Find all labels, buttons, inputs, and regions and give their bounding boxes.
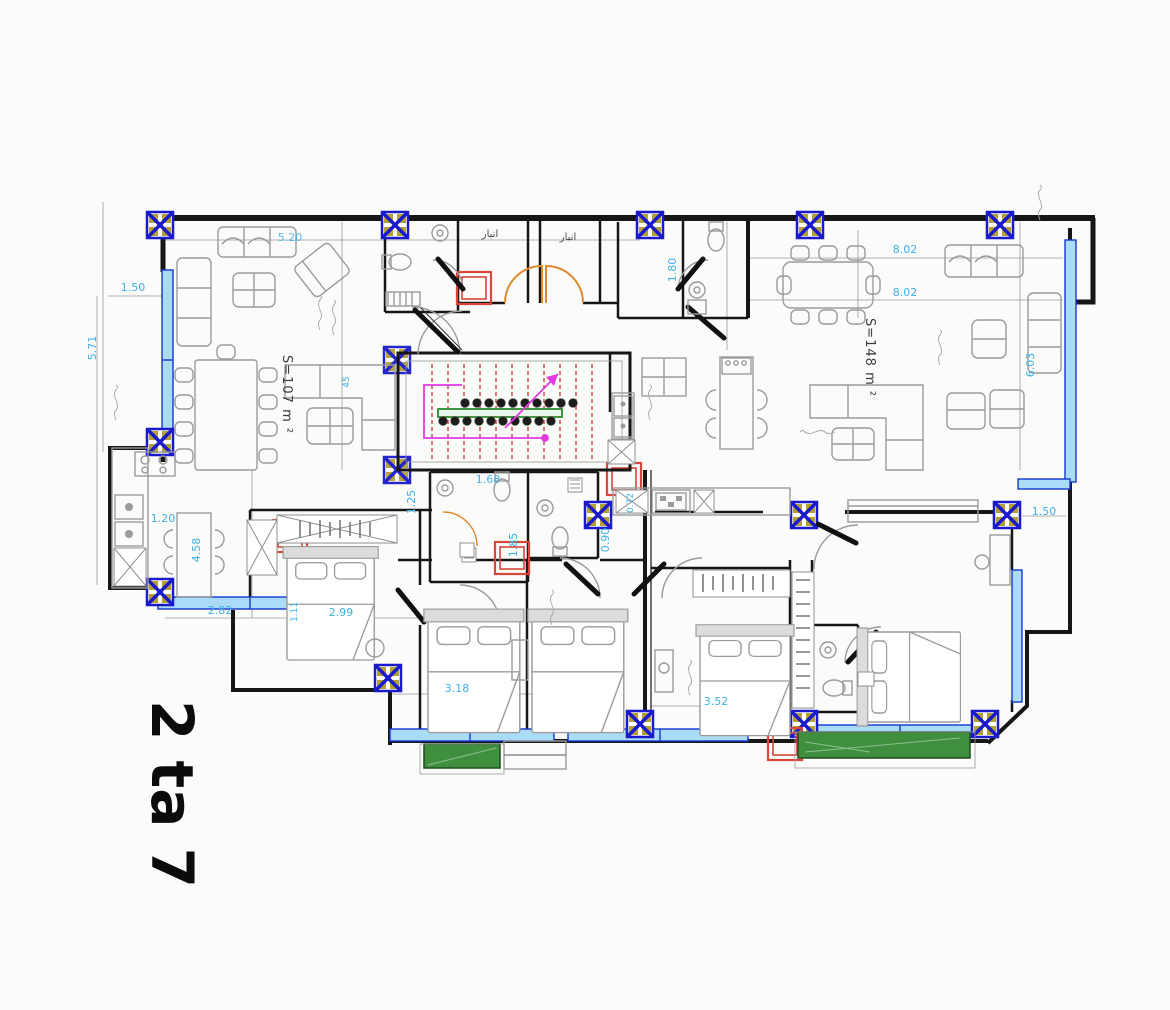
dim-note-45: 45 — [342, 376, 352, 387]
dim-right-span-b: 8.02 — [893, 286, 918, 299]
dim-bed4-width: 3.52 — [704, 695, 729, 708]
beds — [283, 547, 960, 736]
dim-kitchen-width: 1.20 — [151, 512, 176, 525]
dim-right-height: 6.03 — [1024, 353, 1037, 378]
right-living-furniture — [777, 245, 1061, 470]
dim-terrace-width: 1.50 — [121, 281, 146, 294]
dim-hall-height: 1.80 — [666, 258, 679, 283]
area-left-apartment: S=107 m ² — [279, 355, 294, 434]
dim-kitchen-height: 4.58 — [190, 538, 203, 563]
dim-bed1-width: 2.99 — [329, 606, 354, 619]
dim-bed2-width: 3.18 — [445, 682, 470, 695]
room-label-storage-1: انبار — [481, 229, 498, 240]
room-label-storage-2: انبار — [559, 232, 576, 243]
dim-bath-height: 1.85 — [507, 533, 520, 558]
dim-right-span-a: 8.02 — [893, 243, 918, 256]
sheet-title: 2 ta 7 — [138, 700, 206, 888]
entrance-double-door — [505, 266, 583, 303]
dim-terrace-height: 5.71 — [86, 336, 99, 361]
dim-bed1-side: 1.11 — [290, 602, 300, 622]
staircase — [398, 353, 630, 470]
dim-bed1-offset: 2.82 — [208, 604, 233, 617]
dim-corridor-b: 0.72 — [626, 493, 636, 513]
dim-corridor-a: 0.90 — [599, 528, 612, 553]
floorplan-sheet: 1.50 5.71 5.20 8.02 8.02 1.80 6.03 1.20 … — [0, 0, 1170, 1010]
dim-stair-side: 1.25 — [405, 490, 418, 515]
center-kitchen — [608, 357, 767, 464]
stair-handrail — [438, 409, 562, 417]
dim-bath-width: 1.68 — [476, 473, 501, 486]
floorplan-drawing: 1.50 5.71 5.20 8.02 8.02 1.80 6.03 1.20 … — [0, 0, 1170, 1010]
dim-terrace-right: 1.50 — [1032, 505, 1057, 518]
area-right-apartment: S=148 m ² — [862, 318, 877, 397]
dim-living-width: 5.20 — [278, 231, 303, 244]
area-labels: S=107 m ² S=148 m ² — [279, 318, 877, 434]
